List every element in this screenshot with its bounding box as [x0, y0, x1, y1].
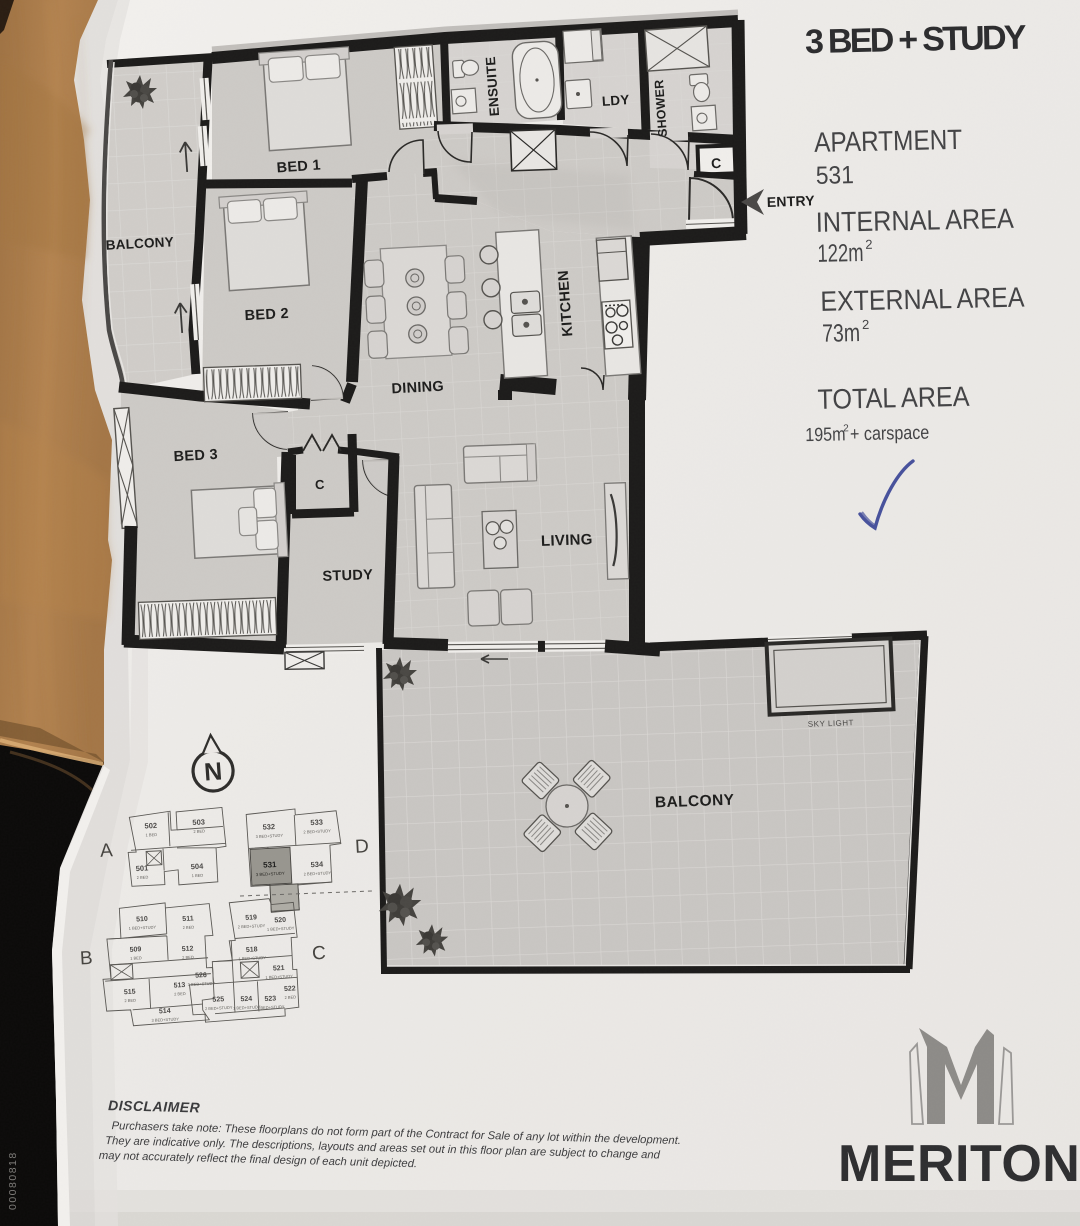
svg-text:501: 501: [136, 863, 149, 873]
svg-text:510: 510: [136, 916, 148, 924]
svg-text:BED 2: BED 2: [244, 306, 289, 324]
svg-text:2: 2: [862, 317, 870, 332]
svg-text:502: 502: [144, 821, 157, 831]
svg-text:2 BED: 2 BED: [124, 998, 136, 1004]
svg-text:MERITON: MERITON: [838, 1135, 1080, 1193]
svg-text:532: 532: [262, 822, 275, 832]
svg-text:522: 522: [284, 985, 296, 993]
svg-text:B: B: [79, 948, 93, 970]
svg-text:2 BED: 2 BED: [284, 994, 296, 1000]
svg-text:519: 519: [245, 914, 257, 922]
svg-text:DISCLAIMER: DISCLAIMER: [108, 1097, 201, 1115]
svg-text:1 BED: 1 BED: [130, 955, 142, 961]
svg-text:513: 513: [173, 982, 185, 990]
svg-text:195m + carspace: 195m + carspace: [805, 423, 929, 447]
svg-text:APARTMENT: APARTMENT: [814, 124, 963, 158]
svg-text:00080818: 00080818: [7, 1151, 19, 1210]
svg-text:518: 518: [246, 946, 258, 954]
svg-text:524: 524: [240, 996, 252, 1004]
svg-text:2: 2: [843, 423, 849, 434]
svg-text:503: 503: [192, 817, 205, 827]
svg-text:2 BED: 2 BED: [193, 828, 205, 834]
svg-text:525: 525: [212, 996, 224, 1004]
svg-text:BED 1: BED 1: [276, 157, 321, 176]
svg-text:1 BED: 1 BED: [145, 832, 157, 838]
svg-text:3 BED + STUDY: 3 BED + STUDY: [805, 18, 1028, 61]
svg-text:122m: 122m: [817, 239, 864, 268]
svg-text:534: 534: [310, 860, 324, 870]
svg-text:INTERNAL AREA: INTERNAL AREA: [815, 203, 1014, 238]
svg-text:523: 523: [264, 995, 276, 1003]
svg-text:531: 531: [816, 161, 855, 190]
svg-text:509: 509: [130, 946, 142, 954]
svg-text:520: 520: [274, 917, 286, 925]
svg-text:LIVING: LIVING: [541, 531, 593, 550]
svg-text:531: 531: [263, 860, 277, 870]
svg-text:526: 526: [195, 972, 207, 980]
svg-text:2: 2: [865, 237, 873, 252]
svg-text:2 BED: 2 BED: [183, 924, 195, 930]
svg-text:512: 512: [182, 946, 194, 954]
svg-text:514: 514: [159, 1008, 171, 1016]
svg-text:STUDY: STUDY: [322, 567, 373, 585]
svg-text:2 BED: 2 BED: [182, 954, 194, 960]
svg-text:504: 504: [191, 862, 205, 872]
svg-text:N: N: [203, 757, 223, 786]
svg-text:TOTAL AREA: TOTAL AREA: [817, 381, 970, 415]
svg-text:ENTRY: ENTRY: [767, 192, 816, 210]
svg-text:C: C: [315, 477, 326, 493]
svg-text:1 BED: 1 BED: [192, 873, 204, 879]
svg-text:DINING: DINING: [391, 379, 444, 398]
svg-text:LDY: LDY: [601, 92, 630, 109]
svg-text:C: C: [711, 155, 722, 171]
svg-text:C: C: [311, 943, 326, 965]
svg-text:A: A: [100, 840, 114, 862]
svg-text:D: D: [354, 836, 369, 858]
svg-text:BALCONY: BALCONY: [655, 792, 735, 812]
svg-text:515: 515: [124, 989, 136, 997]
svg-text:2 BED: 2 BED: [137, 874, 149, 880]
svg-text:521: 521: [273, 965, 285, 973]
svg-text:SKY LIGHT: SKY LIGHT: [808, 718, 854, 729]
svg-text:533: 533: [310, 818, 323, 828]
svg-text:BED 3: BED 3: [173, 447, 218, 465]
svg-text:73m: 73m: [822, 319, 861, 348]
svg-text:2 BED: 2 BED: [174, 991, 186, 997]
svg-text:EXTERNAL AREA: EXTERNAL AREA: [820, 282, 1025, 317]
svg-text:511: 511: [182, 915, 194, 923]
